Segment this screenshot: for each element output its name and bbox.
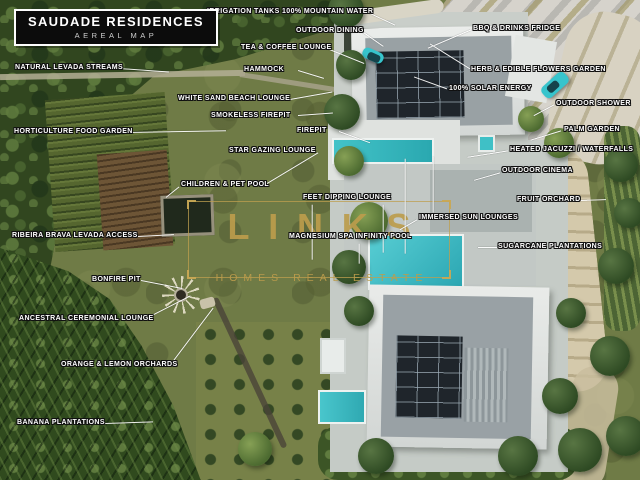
plunge-pool: [320, 338, 346, 374]
map-label-herb-edible-flowers-garden: HERB & EDIBLE FLOWERS GARDEN: [471, 66, 606, 73]
page-title: SAUDADE RESIDENCES: [28, 14, 204, 29]
map-label-banana-plantations: BANANA PLANTATIONS: [17, 419, 105, 426]
brand-name: LINKS: [189, 206, 449, 248]
map-title-box: SAUDADE RESIDENCES AEREAL MAP: [14, 9, 218, 46]
leader-line: [432, 157, 433, 213]
map-label-tea-coffee-lounge: TEA & COFFEE LOUNGE: [241, 44, 332, 51]
solar-panel-array: [395, 335, 462, 418]
leader-line: [382, 205, 383, 253]
tree: [590, 336, 630, 376]
map-label-children-pet-pool: CHILDREN & PET POOL: [181, 181, 269, 188]
map-label-outdoor-cinema: OUTDOOR CINEMA: [502, 167, 573, 174]
palm-tree: [238, 432, 272, 466]
map-label-bbq-drinks-fridge: BBQ & DRINKS FRIDGE: [473, 25, 560, 32]
tree: [358, 438, 394, 474]
map-label-fruit-orchard: FRUIT ORCHARD: [517, 196, 581, 203]
tree: [558, 428, 602, 472]
map-label-firepit: FIREPIT: [297, 127, 327, 134]
aerial-map: LINKS HOMES REAL ESTATE IRRIGATION TANKS…: [0, 0, 640, 480]
map-label-magnesium-spa-infinity-pool: MAGNESIUM SPA INFINITY POOL: [289, 233, 412, 240]
tree: [498, 436, 538, 476]
tree: [344, 296, 374, 326]
map-label-orange-lemon-orchards: ORANGE & LEMON ORCHARDS: [61, 361, 178, 368]
map-label-smokeless-firepit: SMOKELESS FIREPIT: [211, 112, 291, 119]
map-label-white-sand-beach-lounge: WHITE SAND BEACH LOUNGE: [178, 95, 290, 102]
plunge-pool: [318, 390, 366, 424]
villa-2-louvered-roof: [463, 348, 508, 423]
map-label-palm-garden: PALM GARDEN: [564, 126, 620, 133]
page-subtitle: AEREAL MAP: [28, 31, 204, 40]
map-label-outdoor-shower: OUTDOOR SHOWER: [556, 100, 631, 107]
map-label-ancestral-ceremonial-lounge: ANCESTRAL CEREMONIAL LOUNGE: [19, 315, 154, 322]
map-label-solar-energy: 100% SOLAR ENERGY: [449, 85, 532, 92]
tree: [542, 378, 578, 414]
map-label-irrigation-tanks: IRRIGATION TANKS 100% MOUNTAIN WATER: [207, 8, 373, 15]
tree: [606, 416, 640, 456]
tree: [614, 198, 640, 228]
map-label-bonfire-pit: BONFIRE PIT: [92, 276, 141, 283]
tree: [604, 148, 638, 182]
jacuzzi-pool: [478, 135, 495, 152]
leader-line: [358, 244, 359, 264]
palm-tree: [334, 146, 364, 176]
tree: [556, 298, 586, 328]
map-label-heated-jacuzzi-waterfalls: HEATED JACUZZI / WATERFALLS: [510, 146, 633, 153]
tree: [598, 248, 634, 284]
map-label-natural-levada-streams: NATURAL LEVADA STREAMS: [15, 64, 123, 71]
map-label-feet-dipping-lounge: FEET DIPPING LOUNGE: [303, 194, 391, 201]
map-label-star-gazing-lounge: STAR GAZING LOUNGE: [229, 147, 316, 154]
map-label-hammock: HAMMOCK: [244, 66, 284, 73]
map-label-immersed-sun-lounges: IMMERSED SUN LOUNGES: [419, 214, 518, 221]
map-label-sugarcane-plantations: SUGARCANE PLANTATIONS: [498, 243, 602, 250]
map-label-outdoor-dining: OUTDOOR DINING: [296, 27, 364, 34]
map-label-horticulture-food-garden: HORTICULTURE FOOD GARDEN: [14, 128, 133, 135]
leader-line: [478, 247, 497, 248]
map-label-ribeira-brava-levada-access: RIBEIRA BRAVA LEVADA ACCESS: [12, 232, 138, 239]
brand-tagline: HOMES REAL ESTATE: [189, 272, 449, 284]
